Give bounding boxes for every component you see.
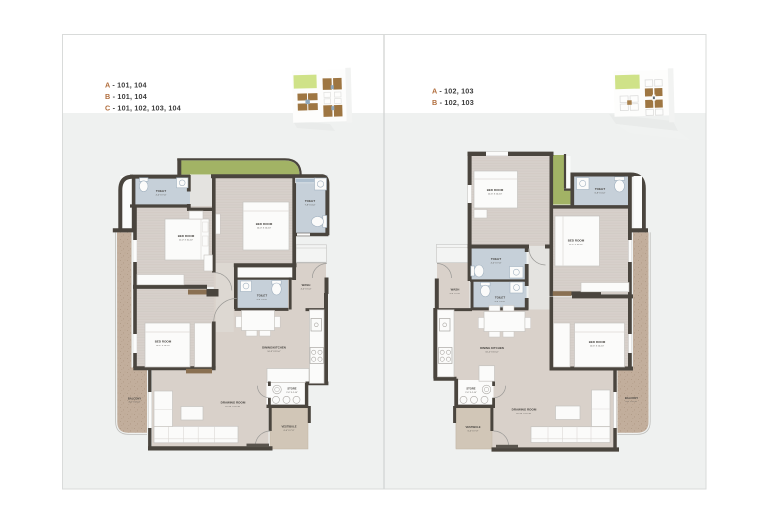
svg-text:TOILET: TOILET [156,189,166,193]
svg-text:B - 102, 103: B - 102, 103 [432,98,474,107]
svg-text:DINING KITCHEN: DINING KITCHEN [480,346,504,350]
svg-text:STORE: STORE [466,387,475,391]
svg-text:BED ROOM: BED ROOM [589,340,606,344]
svg-text:TOILET: TOILET [595,187,605,191]
svg-text:6'-0" X 7'-9": 6'-0" X 7'-9" [284,430,295,432]
svg-text:4'-0" X 7'-6": 4'-0" X 7'-6" [491,263,502,265]
svg-text:10'-2" X 15'-0": 10'-2" X 15'-0" [485,351,498,353]
svg-text:BED ROOM: BED ROOM [487,188,504,192]
svg-text:2'-0" X 4'-10": 2'-0" X 4'-10" [465,392,477,394]
svg-text:BED ROOM: BED ROOM [178,234,195,238]
svg-text:BALCONY: BALCONY [128,396,141,400]
svg-text:BALCONY: BALCONY [625,396,638,400]
svg-text:VESTIBULE: VESTIBULE [465,425,480,429]
svg-text:6'-0" X 7'-9": 6'-0" X 7'-9" [468,430,479,432]
svg-text:A - 101, 104: A - 101, 104 [105,81,147,90]
svg-text:10'-6" X 10'-10": 10'-6" X 10'-10" [590,346,605,348]
svg-text:VESTIBULE: VESTIBULE [281,425,296,429]
svg-text:10'-3" X 15'-0": 10'-3" X 15'-0" [267,351,280,353]
svg-text:BED ROOM: BED ROOM [155,340,172,344]
svg-text:DINING/KITCHEN: DINING/KITCHEN [262,345,286,349]
svg-text:DRAWING ROOM: DRAWING ROOM [221,400,246,404]
svg-text:11'-0" X 10'-10": 11'-0" X 10'-10" [179,240,193,242]
svg-text:C - 101, 102, 103, 104: C - 101, 102, 103, 104 [105,104,181,113]
svg-text:WASH: WASH [451,288,460,292]
svg-text:4'-0" X 6'-0": 4'-0" X 6'-0" [257,299,268,301]
svg-text:4'-0" X 5'-0": 4'-0" X 5'-0" [301,289,312,291]
svg-text:4'-0" X 21'-0": 4'-0" X 21'-0" [129,402,141,404]
svg-text:18'-10" X 10'-10": 18'-10" X 10'-10" [516,413,532,415]
svg-text:TOILET: TOILET [491,257,501,261]
svg-text:STORE: STORE [287,387,296,391]
svg-text:TOILET: TOILET [305,199,315,203]
svg-text:12'-6" X 10'-10": 12'-6" X 10'-10" [488,194,503,196]
svg-text:6'-8" X 4'-0": 6'-8" X 4'-0" [595,193,606,195]
svg-text:10'-10" X 18'-10": 10'-10" X 18'-10" [225,406,241,408]
svg-text:B - 101, 104: B - 101, 104 [105,92,147,101]
svg-text:14'-0" X 10'-10": 14'-0" X 10'-10" [257,228,272,230]
svg-text:BED ROOM: BED ROOM [256,222,273,226]
svg-text:BED ROOM: BED ROOM [568,239,585,243]
svg-text:4'-0" X 5'-0": 4'-0" X 5'-0" [450,293,461,295]
svg-text:11'-0" X 10'-10": 11'-0" X 10'-10" [569,244,583,246]
svg-text:WASH: WASH [302,283,311,287]
svg-text:TOILET: TOILET [257,294,267,298]
svg-text:4'-0" X 6'-0": 4'-0" X 6'-0" [495,301,506,303]
svg-text:A - 102, 103: A - 102, 103 [432,87,474,96]
svg-text:7'-8" X 4'-0": 7'-8" X 4'-0" [305,205,316,207]
svg-text:4'-0" X 7'-6": 4'-0" X 7'-6" [156,195,167,197]
svg-text:10'-6" X 10'-10": 10'-6" X 10'-10" [156,345,171,347]
svg-text:4'-0" X 21'-0": 4'-0" X 21'-0" [626,401,638,403]
svg-text:2'-0" X 4'-10": 2'-0" X 4'-10" [286,392,298,394]
svg-text:DRAWING ROOM: DRAWING ROOM [512,407,537,411]
svg-text:TOILET: TOILET [495,296,505,300]
